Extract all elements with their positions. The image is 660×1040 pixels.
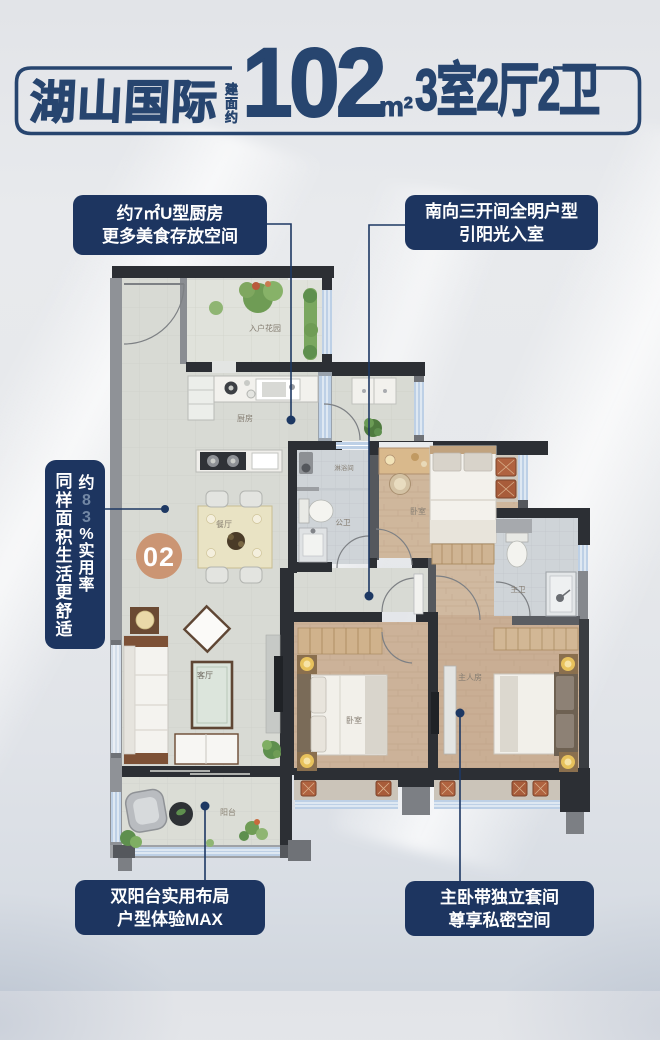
svg-text:主卫: 主卫	[511, 584, 526, 594]
svg-text:客厅: 客厅	[197, 670, 213, 680]
svg-text:公卫: 公卫	[336, 518, 351, 527]
svg-text:卧室: 卧室	[410, 506, 426, 516]
svg-text:卧室: 卧室	[346, 715, 362, 725]
svg-text:厨房: 厨房	[237, 413, 253, 423]
svg-text:阳台: 阳台	[220, 807, 236, 817]
svg-text:淋浴间: 淋浴间	[334, 463, 354, 472]
svg-text:02: 02	[143, 542, 175, 572]
svg-text:入户花园: 入户花园	[249, 323, 281, 333]
svg-text:主人房: 主人房	[458, 672, 482, 682]
svg-text:餐厅: 餐厅	[216, 520, 232, 529]
